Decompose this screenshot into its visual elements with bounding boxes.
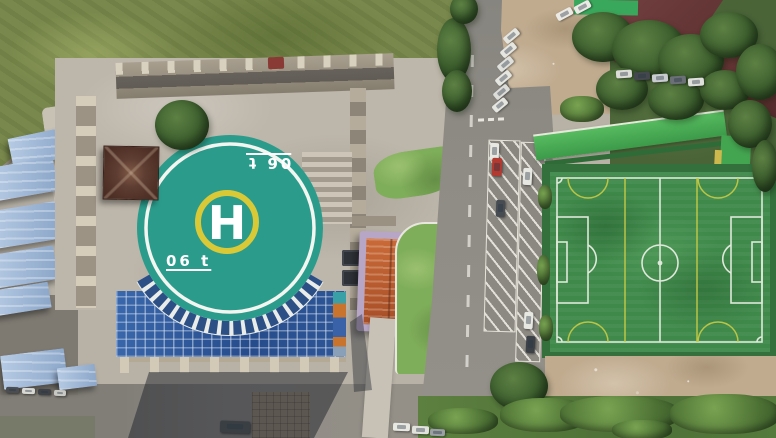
shack-roof — [0, 201, 61, 249]
bush — [670, 394, 776, 434]
bush — [538, 185, 552, 209]
shack-roof — [0, 157, 58, 201]
bush — [537, 255, 550, 285]
football-pitch — [542, 164, 776, 358]
car — [430, 429, 445, 437]
car — [523, 168, 533, 185]
car — [54, 390, 66, 396]
pavilion-roof — [103, 146, 160, 201]
bush — [560, 96, 604, 122]
parking-strip — [483, 140, 520, 333]
helipad: H — [100, 98, 360, 358]
tree — [155, 100, 209, 150]
car — [496, 200, 506, 217]
weight-marking-south: 06 t — [166, 252, 211, 270]
car — [220, 420, 250, 433]
paved-patch — [252, 392, 310, 438]
helipad-letter: H — [208, 196, 247, 250]
crenellated-parapet — [120, 357, 346, 373]
car — [524, 312, 534, 329]
shack-roof — [57, 364, 97, 390]
car — [393, 423, 410, 432]
red-car — [492, 158, 503, 176]
bush — [612, 420, 672, 438]
tree — [752, 140, 776, 192]
car — [634, 71, 651, 80]
car — [22, 388, 35, 394]
tree — [442, 70, 472, 112]
roadside-verge — [0, 416, 95, 438]
car — [670, 75, 687, 84]
car — [526, 336, 536, 353]
colonnade — [76, 96, 96, 308]
car — [38, 389, 51, 395]
weight-marking-north: 06 t — [246, 154, 291, 172]
car — [688, 77, 705, 86]
car — [652, 73, 669, 82]
tree — [736, 44, 776, 100]
bush — [539, 315, 553, 341]
shack-roof — [0, 245, 58, 289]
aerial-photo: H 06 t 06 t — [0, 0, 776, 438]
car — [412, 426, 429, 435]
red-rooftop-object — [268, 57, 284, 70]
pitch-lines — [542, 164, 776, 358]
car — [616, 69, 633, 78]
car — [6, 387, 19, 393]
